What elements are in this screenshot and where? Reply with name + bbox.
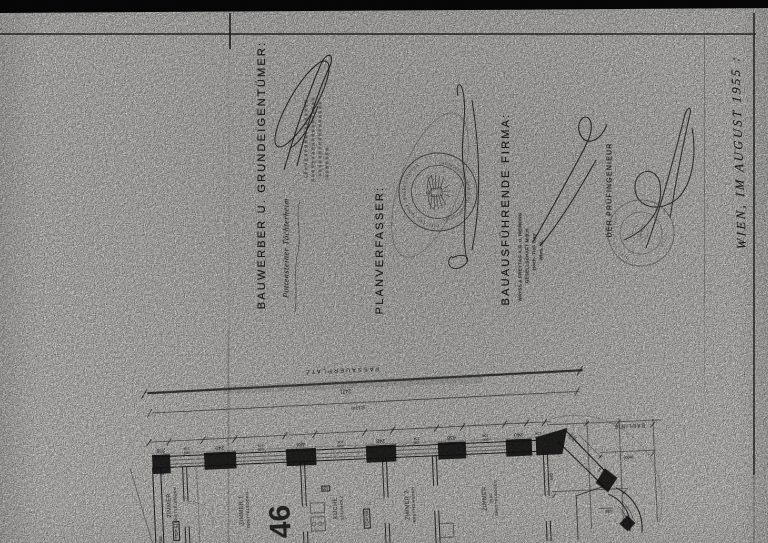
pruef-seal-bottom-arc-text: WIEN: [659, 232, 669, 249]
signatures-and-seals-layer: DIPL. ING. ERNST LEDERER-PONZER STAATL. …: [0, 0, 768, 543]
scanned-plan-sheet: BAUWERBER U. GRUNDEIGENTÜMER: Pottenstei…: [0, 0, 768, 543]
seal-center-emblem: [631, 223, 649, 243]
owner-script-squiggle: [295, 200, 300, 312]
plan-leader-line: [130, 468, 153, 543]
firma-signature: [534, 117, 607, 246]
eagle-icon: [425, 173, 452, 211]
approval-oval: [266, 55, 338, 153]
architect-seal: DIPL. ING. ERNST LEDERER-PONZER STAATL. …: [396, 150, 481, 235]
svg-text:WIEN: WIEN: [659, 232, 669, 249]
pruefingenieur-seal: DIPL. ING. HUGO WIEN: [603, 195, 679, 271]
